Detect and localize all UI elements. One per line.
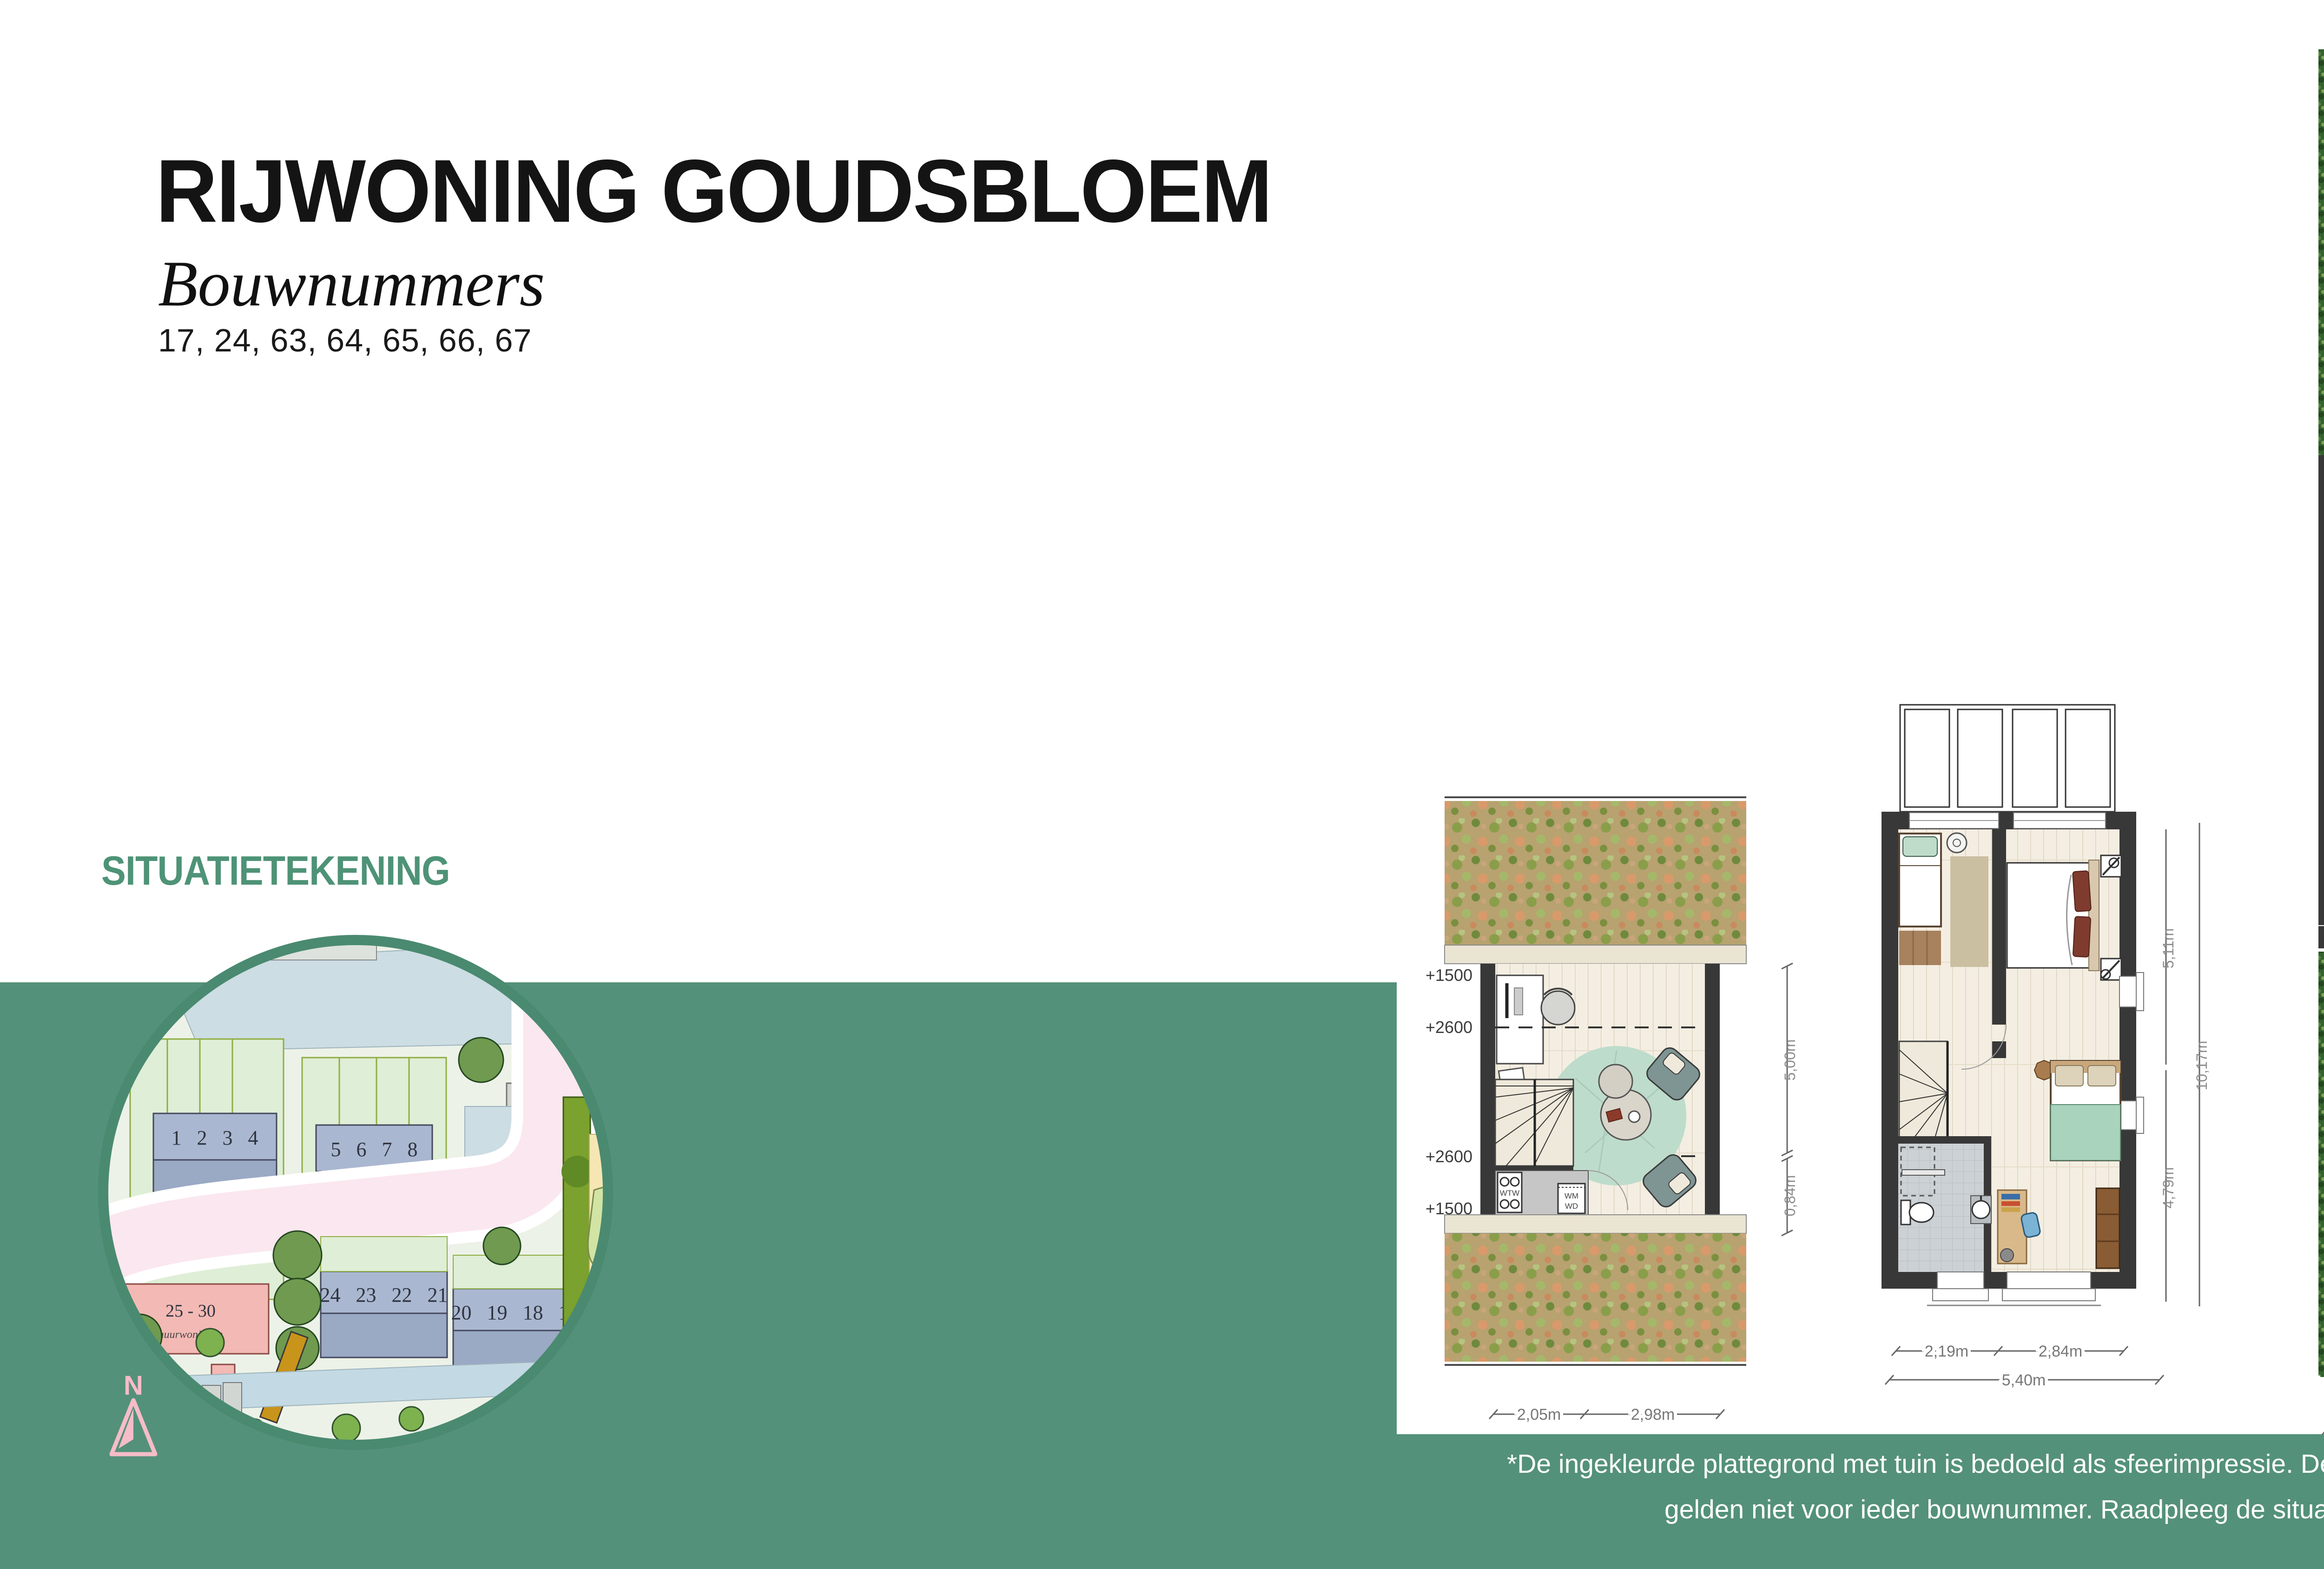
map-sub-rental-left: huurwoningen	[84, 1332, 124, 1344]
first-floor-plan: 5,11m 4,79m 10,17m 2,19m 2,84m 5,40m	[1873, 697, 2217, 1395]
compass-n-label: N	[124, 1370, 143, 1401]
elev-label-3: +2600	[1426, 1147, 1472, 1166]
floor-dim-btotal: 5,40m	[2002, 1371, 2046, 1389]
map-building-24-21: 24 23 22 21	[320, 1271, 448, 1357]
floor-dim-b1: 2,19m	[1925, 1343, 1969, 1360]
disclaimer-line-2: gelden niet voor ieder bouwnummer. Raadp…	[1149, 1487, 2324, 1532]
elev-label-1: +1500	[1426, 966, 1472, 985]
situatietekening-label: SITUATIETEKENING	[101, 847, 450, 894]
disclaimer-line-1: *De ingekleurde plattegrond met tuin is …	[1149, 1441, 2324, 1487]
attic-dim-b1: 2,05m	[1517, 1406, 1561, 1423]
compass: N	[93, 1357, 186, 1464]
map-label-playground-1: Speel	[610, 1347, 634, 1359]
attic-dim-b2: 2,98m	[1631, 1406, 1675, 1423]
first-floor-stairs	[1899, 1041, 1948, 1143]
map-label-row2: 5 6 7 8	[331, 1138, 418, 1161]
floor-dim-r2: 4,79m	[2160, 1167, 2177, 1209]
roof-windows	[1900, 705, 2115, 812]
floor-dim-rtotal: 10,17m	[2193, 1041, 2210, 1091]
wm-label: WM	[1565, 1192, 1578, 1200]
attic-floor-plan: WTW WM WD +1500 +2600 +2600 +1500 5,00m …	[1394, 790, 1813, 1432]
ground-floor-plan: WP	[2301, 37, 2324, 1441]
wtw-label: WTW	[1500, 1189, 1519, 1198]
brochure-page: RIJWONING GOUDSBLOEM Bouwnummers 17, 24,…	[0, 0, 2324, 1569]
map-label-row3: 24 23 22 21	[320, 1284, 448, 1306]
sedum-roof-bottom	[1445, 1233, 1746, 1362]
elev-label-4: +1500	[1426, 1199, 1472, 1218]
front-garden: BERGING	[2318, 949, 2324, 1377]
floor-dim-b2: 2,84m	[2039, 1343, 2083, 1360]
bathroom	[1898, 1136, 1991, 1272]
map-label-rental-mid: 25 - 30	[165, 1301, 216, 1321]
house-ground-floor: WP	[2318, 455, 2324, 1018]
map-label-row1: 1 2 3 4	[172, 1126, 258, 1149]
map-building-20-17: 20 19 18 17	[451, 1289, 579, 1375]
floor-dim-r1: 5,11m	[2160, 928, 2177, 969]
map-label-rental-left: - 36	[84, 1306, 109, 1325]
attic-dim-right-low: 0,84m	[1782, 1175, 1798, 1217]
elev-label-2: +2600	[1426, 1018, 1472, 1037]
back-garden	[2318, 49, 2324, 455]
wd-label: WD	[1565, 1202, 1578, 1211]
page-title: RIJWONING GOUDSBLOEM	[156, 139, 1271, 242]
attic-dim-right: 5,00m	[1782, 1039, 1798, 1081]
disclaimer: *De ingekleurde plattegrond met tuin is …	[1149, 1441, 2324, 1532]
map-label-playground-2: plek	[606, 1362, 626, 1374]
map-label-row4: 20 19 18 17	[451, 1301, 579, 1324]
bouwnummers-list: 17, 24, 63, 64, 65, 66, 67	[158, 322, 532, 359]
sedum-roof-top	[1445, 801, 1746, 945]
attic-stairs	[1495, 1079, 1573, 1166]
page-subtitle: Bouwnummers	[158, 246, 545, 321]
